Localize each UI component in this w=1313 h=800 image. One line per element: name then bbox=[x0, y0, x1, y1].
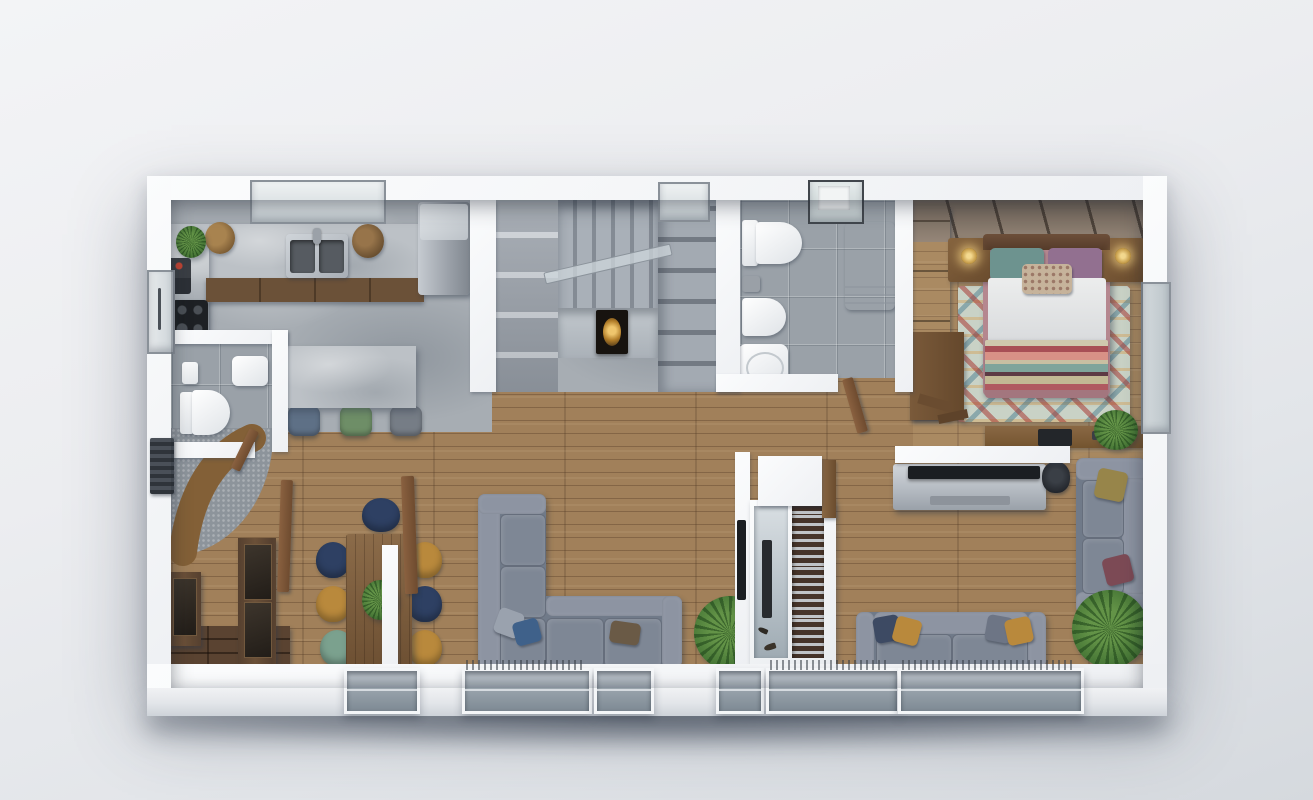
wall-wc-right bbox=[272, 330, 288, 452]
bath-dispenser bbox=[742, 276, 760, 292]
dining-window bbox=[344, 668, 420, 714]
kitchen-plant bbox=[176, 226, 206, 258]
radiator-lounge bbox=[902, 660, 1074, 670]
pillow-olive bbox=[1093, 467, 1129, 503]
tv-console-drawer bbox=[930, 496, 1010, 505]
artwork-gilt-ornament bbox=[603, 318, 621, 346]
left-door-handle bbox=[158, 288, 161, 330]
dining-chair-left-navy bbox=[316, 542, 350, 578]
wc-accessories bbox=[182, 362, 198, 384]
l-sofa-armrest-top bbox=[478, 494, 546, 514]
wall-kitchen-stairs bbox=[470, 200, 496, 392]
stair-window bbox=[658, 182, 710, 222]
log-bin bbox=[352, 224, 384, 258]
pillow-accent-patterned bbox=[1022, 264, 1072, 294]
l-sofa-cushion-v1 bbox=[500, 514, 546, 566]
wall-left bbox=[147, 176, 171, 688]
bed-foot-rail bbox=[985, 390, 1108, 398]
corner-palm-plant bbox=[1072, 590, 1148, 668]
desk-laptop bbox=[1038, 429, 1072, 446]
divider-pillar bbox=[758, 456, 822, 506]
wicker-baskets bbox=[205, 222, 235, 254]
wall-bedroom-bottom bbox=[895, 446, 1070, 463]
bed-blanket-striped bbox=[985, 340, 1108, 394]
radiator-hall bbox=[770, 660, 890, 670]
wall-bathroom-bottom bbox=[716, 374, 838, 392]
aquarium-tv-strip bbox=[762, 540, 772, 618]
entry-radiator bbox=[150, 438, 174, 494]
bath-toilet-bowl bbox=[756, 222, 802, 264]
dining-chair-right-mustard-2 bbox=[408, 630, 442, 666]
bar-stool-gray bbox=[390, 406, 422, 436]
bedroom-plant bbox=[1094, 410, 1138, 450]
floor-plan-render bbox=[0, 0, 1313, 800]
partition-tv bbox=[737, 520, 746, 600]
sink-basin-right bbox=[319, 240, 344, 273]
kitchen-cabinet-front bbox=[206, 278, 424, 302]
bar-stool-green bbox=[340, 406, 372, 436]
entry-wardrobe-glass-2 bbox=[244, 602, 272, 658]
divider-wood-panel bbox=[822, 460, 836, 518]
desk-chair bbox=[1042, 462, 1070, 493]
kitchen-window bbox=[250, 180, 386, 224]
stair-lower-flight bbox=[494, 214, 558, 392]
dining-chair-head-navy bbox=[362, 498, 400, 532]
wc-basin bbox=[232, 356, 268, 386]
bedroom-right-window bbox=[1141, 282, 1171, 434]
hall-window-2 bbox=[766, 668, 900, 714]
kitchen-island bbox=[282, 346, 416, 408]
dining-chair-left-mustard bbox=[316, 586, 350, 622]
l-sofa-armrest-right bbox=[662, 596, 682, 668]
wall-bathroom-bedroom bbox=[895, 200, 913, 392]
sink-faucet bbox=[313, 228, 321, 244]
pillow-mustard-right bbox=[1004, 616, 1035, 647]
l-sofa-back-left bbox=[478, 494, 500, 668]
radiator-living bbox=[466, 660, 582, 670]
left-glass-door bbox=[147, 270, 175, 354]
fridge-top-panel bbox=[420, 204, 468, 240]
hall-window-1 bbox=[716, 668, 764, 714]
entry-wardrobe-left-glass bbox=[173, 578, 197, 636]
wall-wc-top bbox=[171, 330, 288, 344]
wall-entry-dining bbox=[382, 545, 398, 664]
living-window-2 bbox=[594, 668, 654, 714]
wall-stairs-bathroom bbox=[716, 200, 740, 392]
lounge-window bbox=[898, 668, 1084, 714]
living-window-1 bbox=[462, 668, 592, 714]
tv-screen bbox=[908, 466, 1040, 479]
sink-basin-left bbox=[290, 240, 315, 273]
bathroom-skylight-inner bbox=[818, 186, 850, 210]
washing-machine bbox=[845, 222, 895, 310]
bedside-lamp-left bbox=[961, 248, 977, 264]
bath-bidet bbox=[742, 298, 786, 336]
bedside-lamp-right bbox=[1115, 248, 1131, 264]
l-sofa-pillow-brown bbox=[609, 620, 642, 646]
divider-bookshelf bbox=[792, 506, 824, 658]
